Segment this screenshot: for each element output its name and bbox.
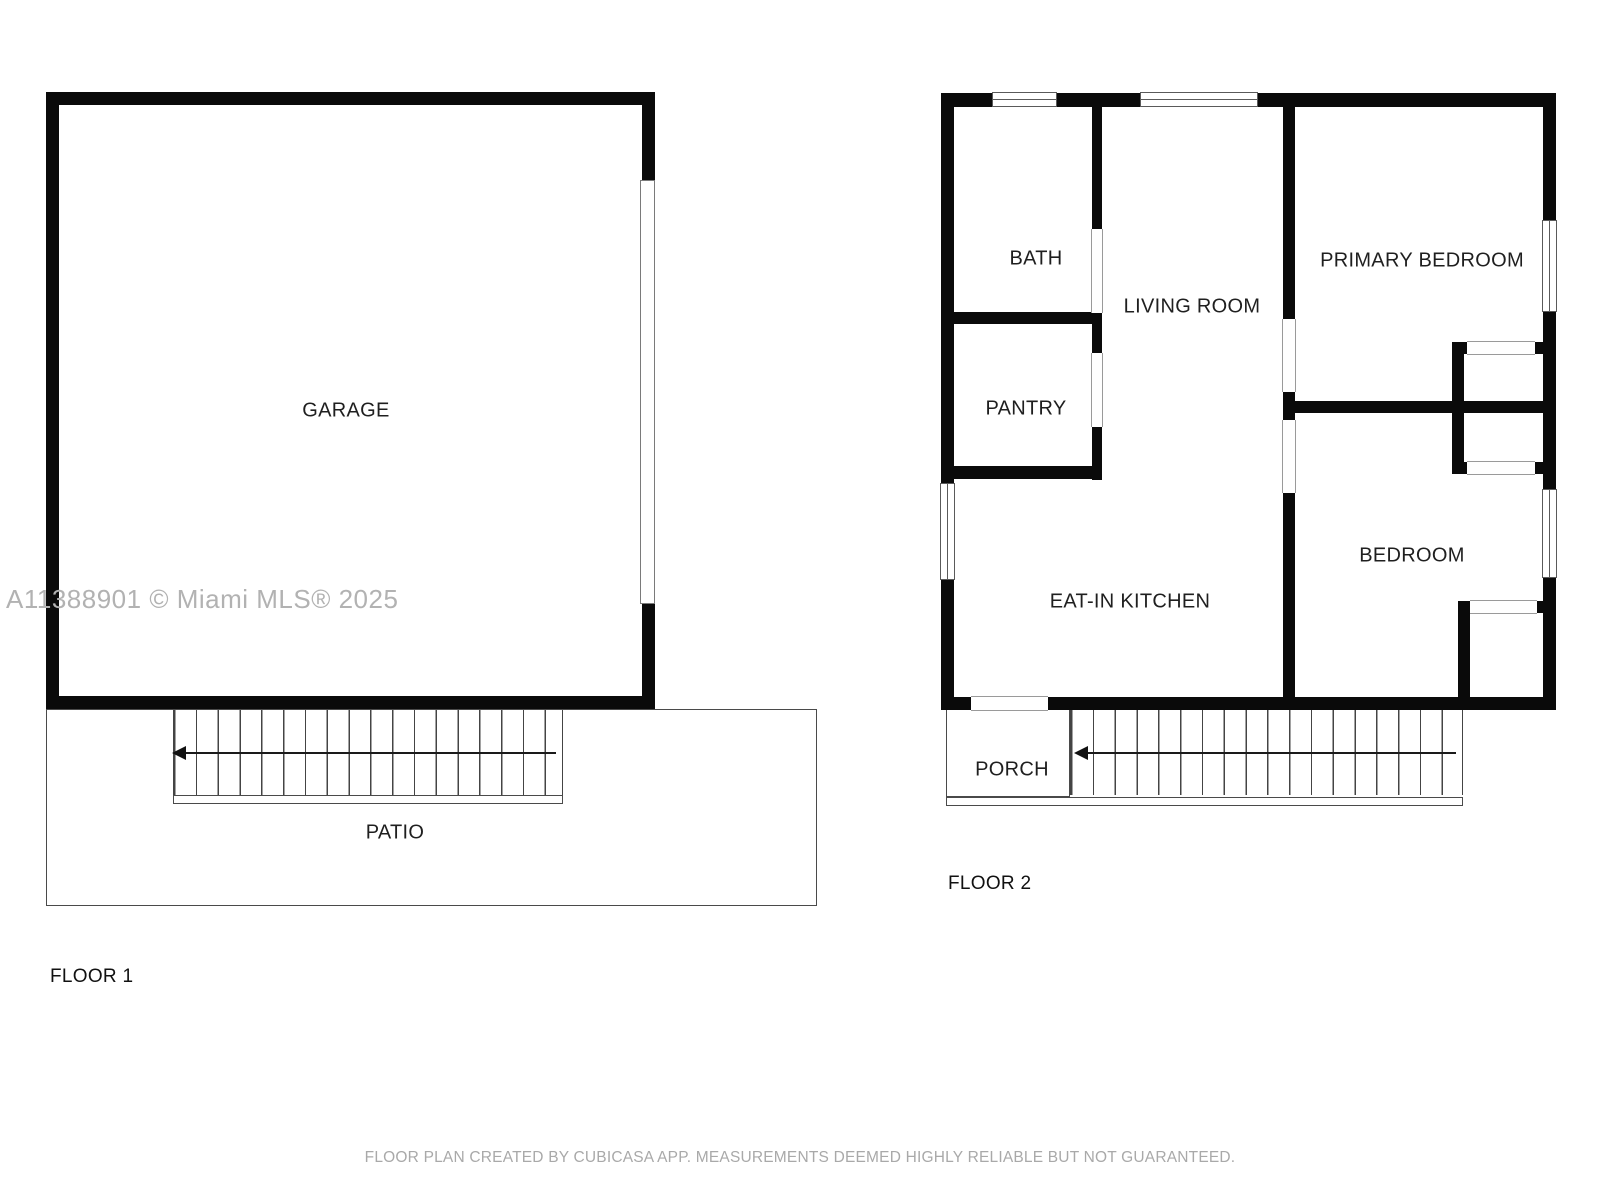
door-opening: [1467, 461, 1535, 475]
floor2-label: FLOOR 2: [948, 873, 1031, 895]
room-label-porch: PORCH: [975, 759, 1049, 782]
room-label-pantry: PANTRY: [985, 398, 1066, 421]
floor-plan-page: GARAGE PATIO FLOOR 1: [0, 0, 1600, 1200]
door-opening: [971, 696, 1048, 711]
window: [992, 92, 1057, 107]
room-label-bath: BATH: [1009, 248, 1062, 271]
wall: [1283, 493, 1295, 697]
stairs-direction-arrow: [1074, 746, 1088, 760]
door-opening: [1091, 353, 1103, 427]
wall: [1543, 93, 1556, 710]
mls-watermark: A11388901 © Miami MLS® 2025: [6, 584, 398, 615]
wall: [642, 604, 655, 709]
wall: [941, 312, 1102, 324]
door-opening: [1282, 319, 1296, 392]
room-label-patio: PATIO: [366, 822, 425, 845]
door-opening: [1282, 420, 1296, 493]
door-opening: [1091, 229, 1103, 313]
stairs-direction-line: [1087, 752, 1456, 754]
room-label-bedroom: BEDROOM: [1359, 545, 1464, 568]
door-opening: [1470, 600, 1537, 614]
wall: [1458, 601, 1470, 697]
wall: [941, 466, 1102, 479]
wall: [1283, 401, 1543, 413]
room-label-garage: GARAGE: [302, 400, 389, 423]
room-label-primary-bedroom: PRIMARY BEDROOM: [1320, 250, 1524, 273]
wall: [642, 92, 655, 180]
stairs-floor1-base: [173, 795, 563, 804]
wall: [1092, 324, 1102, 353]
window: [1140, 92, 1258, 107]
wall: [46, 92, 655, 105]
stairs-floor2-base: [946, 797, 1463, 806]
wall: [1283, 107, 1295, 319]
garage-door-opening: [640, 180, 655, 604]
window: [1542, 489, 1557, 578]
room-label-eat-in-kitchen: EAT-IN KITCHEN: [1050, 591, 1211, 614]
room-label-living-room: LIVING ROOM: [1124, 296, 1261, 319]
porch-outline: [946, 709, 1070, 797]
wall: [1092, 107, 1102, 229]
window: [1542, 220, 1557, 312]
wall: [46, 696, 655, 709]
footer-disclaimer: FLOOR PLAN CREATED BY CUBICASA APP. MEAS…: [0, 1149, 1600, 1167]
floor1-label: FLOOR 1: [50, 966, 133, 988]
stairs-direction-arrow: [172, 746, 186, 760]
door-opening: [1467, 341, 1535, 355]
wall: [941, 93, 954, 710]
wall: [46, 92, 59, 709]
window: [940, 483, 955, 580]
wall: [1452, 342, 1464, 474]
stairs-direction-line: [185, 752, 556, 754]
